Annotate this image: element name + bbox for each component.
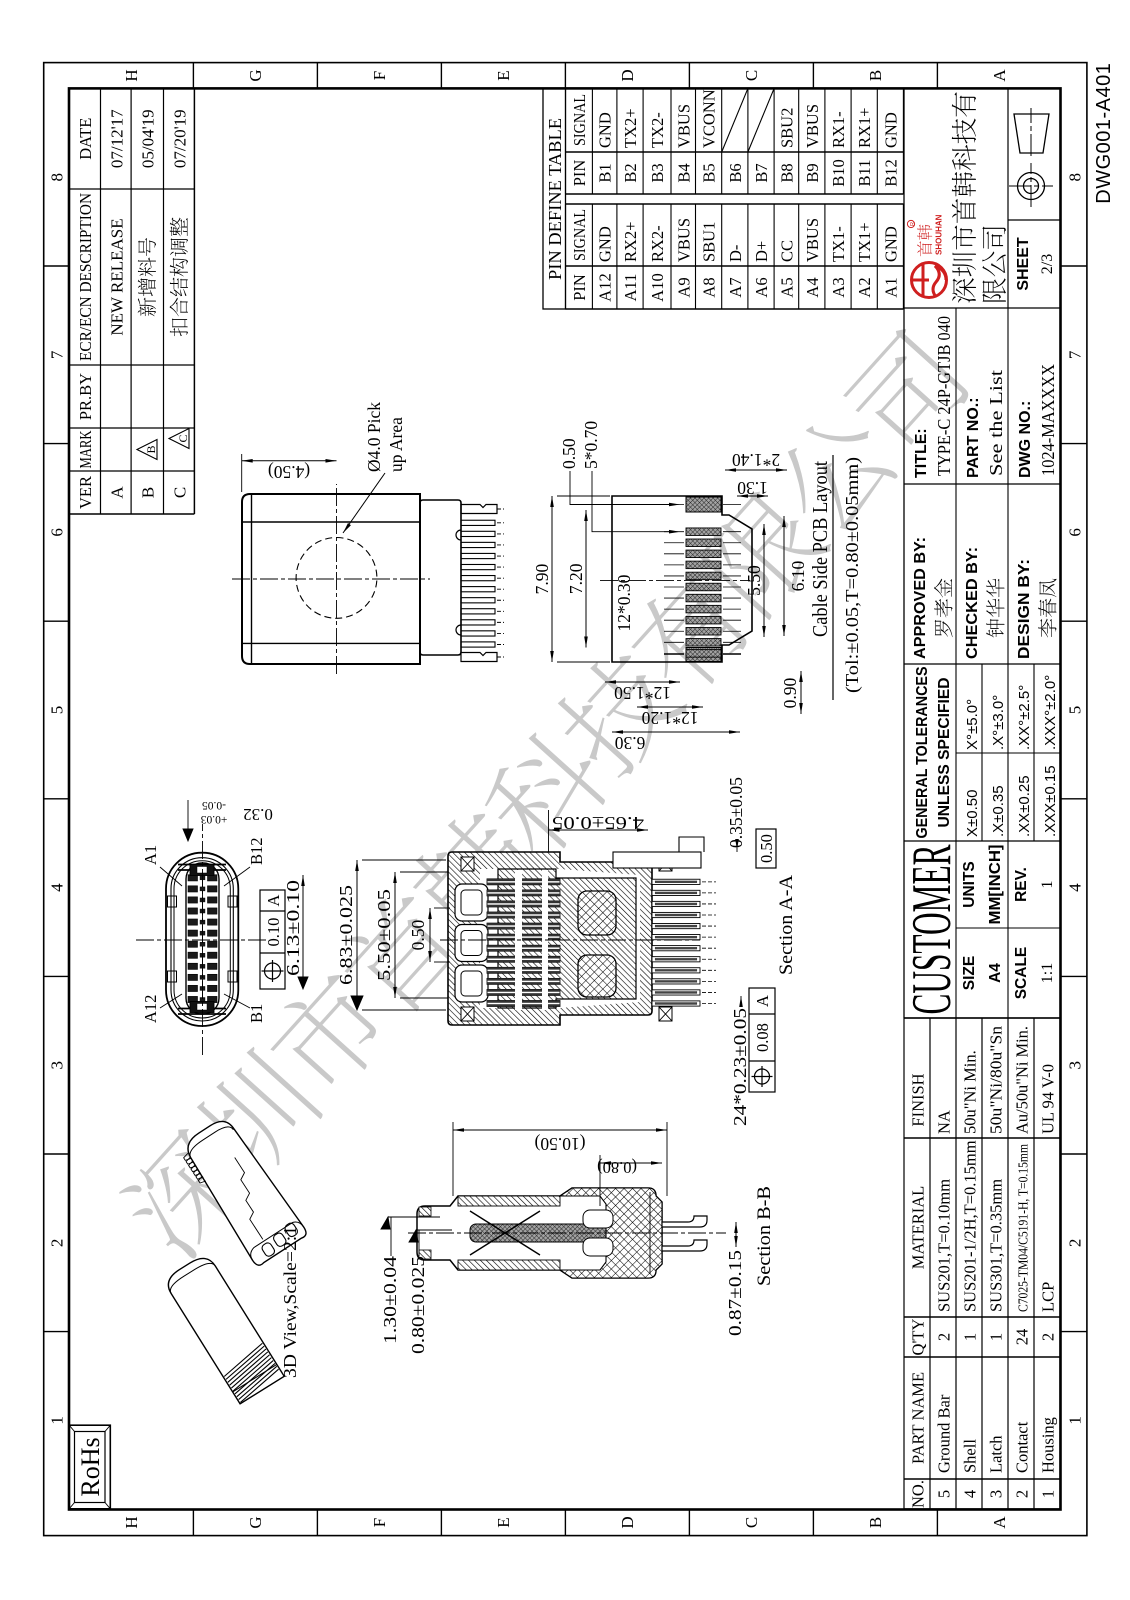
svg-text:5.50±0.05: 5.50±0.05 <box>374 889 394 981</box>
svg-text:VBUS: VBUS <box>803 218 822 262</box>
svg-text:0.35±0.05: 0.35±0.05 <box>726 777 746 848</box>
svg-text:1024-MAXXXX: 1024-MAXXXX <box>1038 364 1058 476</box>
svg-text:0.50: 0.50 <box>408 919 428 950</box>
svg-text:GND: GND <box>881 226 900 262</box>
svg-text:4: 4 <box>961 1490 980 1498</box>
svg-text:A11: A11 <box>621 274 640 302</box>
svg-text:GENERAL TOLERANCES: GENERAL TOLERANCES <box>914 667 931 839</box>
svg-text:7.90: 7.90 <box>532 563 552 594</box>
svg-text:07/12'17: 07/12'17 <box>108 109 127 168</box>
svg-text:X±0.50: X±0.50 <box>964 790 981 837</box>
svg-text:up Area: up Area <box>386 417 406 472</box>
svg-text:3D View,Scale=2:1: 3D View,Scale=2:1 <box>280 1226 300 1378</box>
svg-text:B: B <box>139 487 158 498</box>
svg-text:-0.05: -0.05 <box>202 799 226 811</box>
svg-text:Cable Side PCB Layout: Cable Side PCB Layout <box>808 461 832 637</box>
svg-text:UNITS: UNITS <box>961 861 978 908</box>
svg-text:0.32: 0.32 <box>243 805 273 824</box>
svg-text:PIN: PIN <box>570 274 589 301</box>
svg-text:.X°±3.0°: .X°±3.0° <box>990 695 1007 750</box>
svg-text:G: G <box>246 69 265 81</box>
svg-text:2: 2 <box>48 1239 67 1248</box>
svg-text:(10.50): (10.50) <box>534 1134 585 1154</box>
svg-text:SUS301,T=0.35mm: SUS301,T=0.35mm <box>987 1179 1006 1312</box>
svg-text:NEW RELEASE: NEW RELEASE <box>108 218 127 335</box>
svg-text:B8: B8 <box>777 163 796 182</box>
svg-text:ECR/ECN DESCRIPTION: ECR/ECN DESCRIPTION <box>76 193 95 361</box>
svg-text:TX1+: TX1+ <box>855 222 874 262</box>
svg-text:+0.03: +0.03 <box>200 813 227 825</box>
svg-text:6.10: 6.10 <box>788 560 808 591</box>
svg-text:RX2-: RX2- <box>648 225 667 262</box>
svg-text:0.50: 0.50 <box>757 834 776 863</box>
svg-text:5: 5 <box>48 706 67 715</box>
svg-text:B10: B10 <box>829 159 848 187</box>
svg-text:NA: NA <box>935 1110 954 1134</box>
svg-text:GND: GND <box>596 226 615 262</box>
svg-text:CUSTOMER: CUSTOMER <box>901 844 963 1014</box>
svg-text:.XXX°±2.0°: .XXX°±2.0° <box>1042 675 1059 750</box>
svg-text:UL 94 V-0: UL 94 V-0 <box>1039 1064 1058 1134</box>
svg-text:SIZE: SIZE <box>961 956 978 990</box>
svg-text:D-: D- <box>726 245 745 262</box>
svg-text:NO.: NO. <box>909 1480 928 1508</box>
svg-text:A6: A6 <box>752 277 771 297</box>
svg-text:X°±5.0°: X°±5.0° <box>964 699 981 750</box>
svg-text:B6: B6 <box>726 163 745 182</box>
svg-text:6.13±0.10: 6.13±0.10 <box>283 880 303 976</box>
svg-text:Q'TY: Q'TY <box>909 1318 928 1355</box>
svg-text:SBU2: SBU2 <box>777 108 796 148</box>
svg-text:TITLE:: TITLE: <box>913 428 930 478</box>
svg-text:C: C <box>742 1517 761 1528</box>
svg-text:0.50: 0.50 <box>559 438 579 469</box>
svg-text:.XXX±0.15: .XXX±0.15 <box>1042 765 1059 837</box>
svg-text:B12: B12 <box>881 159 900 187</box>
svg-text:Shell: Shell <box>961 1439 980 1473</box>
svg-text:1: 1 <box>48 1416 67 1425</box>
svg-text:B5: B5 <box>700 163 719 182</box>
svg-text:SCALE: SCALE <box>1013 947 1030 1000</box>
svg-text:Contact: Contact <box>1013 1421 1032 1473</box>
svg-text:7.20: 7.20 <box>566 563 586 594</box>
svg-text:A: A <box>990 69 1009 82</box>
svg-text:SIGNAL: SIGNAL <box>570 94 589 146</box>
svg-text:.XX°±2.5°: .XX°±2.5° <box>1016 685 1033 750</box>
svg-text:DESIGN BY:: DESIGN BY: <box>1016 559 1033 659</box>
svg-text:2: 2 <box>1013 1490 1032 1498</box>
svg-text:A: A <box>990 1516 1009 1529</box>
svg-text:A9: A9 <box>674 277 693 297</box>
svg-text:A12: A12 <box>596 273 615 301</box>
svg-text:1: 1 <box>987 1333 1006 1341</box>
svg-text:LCP: LCP <box>1039 1282 1058 1312</box>
svg-text:Au/50u"Ni Min.: Au/50u"Ni Min. <box>1013 1026 1032 1134</box>
svg-text:24: 24 <box>1013 1329 1032 1346</box>
svg-text:A3: A3 <box>829 277 848 297</box>
svg-text:3: 3 <box>48 1061 67 1070</box>
svg-text:(0.80): (0.80) <box>597 1158 637 1177</box>
svg-text:6.30: 6.30 <box>614 733 645 753</box>
svg-text:MARK: MARK <box>76 430 95 468</box>
svg-text:A10: A10 <box>648 273 667 301</box>
svg-text:B9: B9 <box>803 163 822 182</box>
svg-text:F: F <box>370 1518 389 1527</box>
svg-text:2*1.40: 2*1.40 <box>732 450 780 470</box>
svg-text:R: R <box>910 222 916 226</box>
svg-text:B1: B1 <box>247 1004 266 1023</box>
svg-text:A1: A1 <box>141 845 160 865</box>
svg-text:50u"Ni Min.: 50u"Ni Min. <box>961 1050 980 1134</box>
svg-text:7: 7 <box>1066 350 1085 359</box>
svg-text:B1: B1 <box>596 163 615 182</box>
svg-text:SBU1: SBU1 <box>700 222 719 262</box>
svg-text:VER: VER <box>76 476 95 509</box>
svg-text:6: 6 <box>48 528 67 537</box>
svg-text:PART NO.:: PART NO.: <box>965 397 982 478</box>
svg-text:12*1.20: 12*1.20 <box>641 708 698 728</box>
svg-text:Section A-A: Section A-A <box>776 875 797 975</box>
svg-text:0.10: 0.10 <box>264 918 283 947</box>
svg-text:B7: B7 <box>752 163 771 182</box>
svg-text:REV.: REV. <box>1013 867 1030 902</box>
svg-text:24*0.23±0.05: 24*0.23±0.05 <box>730 1008 750 1126</box>
svg-text:B4: B4 <box>674 163 693 182</box>
svg-text:SIGNAL: SIGNAL <box>570 209 589 261</box>
svg-text:Latch: Latch <box>987 1435 1006 1473</box>
svg-text:Section B-B: Section B-B <box>754 1186 775 1286</box>
svg-text:VBUS: VBUS <box>674 218 693 262</box>
svg-text:A12: A12 <box>141 995 160 1023</box>
svg-text:1:1: 1:1 <box>1039 963 1056 983</box>
svg-text:Ø4.0 Pick: Ø4.0 Pick <box>364 402 384 472</box>
svg-text:1.30±0.04: 1.30±0.04 <box>380 1256 400 1344</box>
svg-text:6: 6 <box>1066 528 1085 537</box>
svg-text:1.30: 1.30 <box>737 478 768 498</box>
svg-text:.X±0.35: .X±0.35 <box>990 785 1007 837</box>
svg-text:5: 5 <box>1066 706 1085 715</box>
svg-text:B: B <box>866 1517 885 1528</box>
svg-text:5: 5 <box>935 1490 954 1498</box>
svg-text:1: 1 <box>1066 1416 1085 1425</box>
svg-text:PIN DEFINE TABLE: PIN DEFINE TABLE <box>545 118 565 280</box>
svg-text:0.08: 0.08 <box>753 1023 772 1052</box>
svg-text:A: A <box>264 894 283 906</box>
svg-text:12*1.50: 12*1.50 <box>614 683 671 703</box>
svg-text:UNLESS SPECIFIED: UNLESS SPECIFIED <box>936 678 953 828</box>
svg-text:1: 1 <box>1039 881 1056 889</box>
svg-text:D+: D+ <box>752 241 771 262</box>
svg-text:D: D <box>618 1516 637 1528</box>
svg-text:8: 8 <box>48 173 67 182</box>
svg-text:GND: GND <box>881 112 900 148</box>
svg-text:GND: GND <box>596 112 615 148</box>
svg-text:Ground Bar: Ground Bar <box>935 1394 954 1473</box>
svg-text:2/3: 2/3 <box>1039 254 1056 274</box>
svg-text:A7: A7 <box>726 277 745 297</box>
svg-text:VBUS: VBUS <box>803 104 822 148</box>
svg-text:VCONN: VCONN <box>700 89 719 148</box>
svg-text:1: 1 <box>961 1333 980 1341</box>
svg-text:G: G <box>246 1516 265 1528</box>
svg-text:B: B <box>144 445 158 453</box>
svg-text:D: D <box>618 69 637 81</box>
svg-text:H: H <box>122 69 141 81</box>
svg-text:0.90: 0.90 <box>780 677 800 708</box>
svg-text:E: E <box>494 70 513 80</box>
svg-text:TX2-: TX2- <box>648 112 667 148</box>
svg-text:See the List: See the List <box>986 370 1006 476</box>
svg-text:PART NAME: PART NAME <box>909 1372 928 1464</box>
svg-text:CC: CC <box>777 240 796 262</box>
svg-text:(Tol:±0.05,T=0.80±0.05mm): (Tol:±0.05,T=0.80±0.05mm) <box>842 457 862 693</box>
svg-text:TX2+: TX2+ <box>621 108 640 148</box>
svg-text:PIN: PIN <box>570 160 589 187</box>
svg-text:RX1+: RX1+ <box>855 108 874 148</box>
svg-text:8: 8 <box>1066 173 1085 182</box>
svg-text:12*0.30: 12*0.30 <box>614 574 634 631</box>
svg-text:2: 2 <box>1066 1239 1085 1248</box>
svg-text:F: F <box>370 71 389 80</box>
svg-text:DATE: DATE <box>76 118 95 160</box>
svg-text:4: 4 <box>48 883 67 892</box>
svg-text:B11: B11 <box>855 160 874 187</box>
svg-text:B2: B2 <box>621 163 640 182</box>
svg-text:5*0.70: 5*0.70 <box>581 421 601 469</box>
svg-text:SHEET: SHEET <box>1015 237 1032 291</box>
svg-text:C: C <box>171 487 190 498</box>
svg-text:DWG001-A401: DWG001-A401 <box>1093 63 1115 204</box>
svg-text:SHOUHAN: SHOUHAN <box>935 214 944 255</box>
svg-text:07/20'19: 07/20'19 <box>171 109 190 168</box>
svg-text:CHECKED BY:: CHECKED BY: <box>964 547 981 659</box>
svg-text:PR.BY: PR.BY <box>76 373 95 420</box>
svg-text:Housing: Housing <box>1039 1417 1058 1473</box>
svg-text:A4: A4 <box>987 963 1004 983</box>
svg-text:05/04'19: 05/04'19 <box>139 109 158 168</box>
svg-text:RX1-: RX1- <box>829 111 848 148</box>
svg-text:0.87±0.15: 0.87±0.15 <box>725 1250 745 1336</box>
svg-text:4: 4 <box>1066 883 1085 892</box>
svg-text:3: 3 <box>987 1490 1006 1498</box>
svg-text:0.80±0.025: 0.80±0.025 <box>408 1256 428 1354</box>
svg-text:(4.50): (4.50) <box>268 462 310 482</box>
svg-text:3: 3 <box>1066 1061 1085 1070</box>
svg-text:A: A <box>108 486 127 499</box>
svg-text:MM[INCH]: MM[INCH] <box>987 845 1004 925</box>
svg-text:RoHs: RoHs <box>76 1437 105 1496</box>
svg-text:E: E <box>494 1517 513 1527</box>
svg-text:SUS201,T=0.10mm: SUS201,T=0.10mm <box>935 1179 954 1312</box>
svg-text:A1: A1 <box>881 277 900 297</box>
svg-text:50u"Ni/80u"Sn: 50u"Ni/80u"Sn <box>987 1026 1006 1134</box>
svg-text:A: A <box>753 995 772 1007</box>
svg-text:RX2+: RX2+ <box>621 222 640 262</box>
svg-text:TYPE-C 24P-GTJB 040: TYPE-C 24P-GTJB 040 <box>934 316 954 476</box>
svg-text:B12: B12 <box>247 837 266 865</box>
svg-text:2: 2 <box>1039 1333 1058 1341</box>
svg-text:A2: A2 <box>855 277 874 297</box>
svg-text:DWG NO.:: DWG NO.: <box>1017 401 1034 478</box>
svg-text:B3: B3 <box>648 163 667 182</box>
svg-text:H: H <box>122 1516 141 1528</box>
svg-text:C: C <box>742 70 761 81</box>
svg-text:1: 1 <box>1039 1490 1058 1498</box>
svg-text:VBUS: VBUS <box>674 104 693 148</box>
svg-text:.XX±0.25: .XX±0.25 <box>1016 775 1033 837</box>
svg-text:7: 7 <box>48 350 67 359</box>
svg-text:APPROVED BY:: APPROVED BY: <box>912 537 929 659</box>
svg-text:FINISH: FINISH <box>909 1073 928 1126</box>
svg-text:B: B <box>866 70 885 81</box>
svg-text:4.65±0.05: 4.65±0.05 <box>552 813 644 833</box>
svg-text:A4: A4 <box>803 277 822 297</box>
svg-text:MATERIAL: MATERIAL <box>909 1186 928 1269</box>
svg-text:SUS201-1/2H,T=0.15mm: SUS201-1/2H,T=0.15mm <box>961 1140 980 1312</box>
svg-text:C: C <box>176 434 190 442</box>
svg-text:2: 2 <box>935 1333 954 1341</box>
svg-text:5.50: 5.50 <box>744 565 764 596</box>
svg-text:A5: A5 <box>777 277 796 297</box>
svg-text:6.83±0.025: 6.83±0.025 <box>336 885 356 985</box>
svg-text:C7025-TM04/C5191-H, T=0.15mm: C7025-TM04/C5191-H, T=0.15mm <box>1016 1144 1031 1312</box>
svg-text:A8: A8 <box>700 277 719 297</box>
svg-text:TX1-: TX1- <box>829 226 848 262</box>
